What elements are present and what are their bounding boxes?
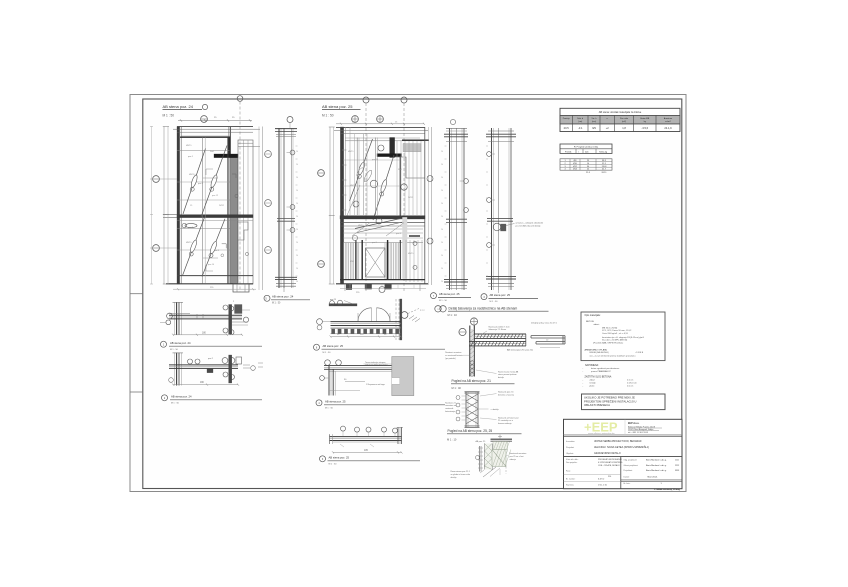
svg-text:M 1 : 50: M 1 : 50 <box>322 114 334 118</box>
svg-text:poz.14: poz.14 <box>208 264 215 266</box>
svg-text:M 1 : 10: M 1 : 10 <box>447 437 457 441</box>
svg-text:Rezervisano poz 25 1: Rezervisano poz 25 1 <box>451 471 471 473</box>
svg-text:(m2): (m2) <box>622 121 626 123</box>
svg-text:Boris Marković u.d.i.g.: Boris Marković u.d.i.g. <box>646 464 667 467</box>
svg-text:AB stena poz. 24: AB stena poz. 24 <box>163 104 194 109</box>
svg-text:M 1 : 50: M 1 : 50 <box>272 302 281 304</box>
svg-text:PG: PG <box>608 476 611 478</box>
svg-text:Br. lista:: Br. lista: <box>624 482 631 485</box>
svg-text:AB stena poz. 25: AB stena poz. 25 <box>490 293 511 297</box>
svg-text:armatura - odstojnik obezbedit: armatura - odstojnik obezbediti <box>516 221 544 224</box>
svg-text:Cmin 260 kg/m3 ; v/c = 0,55: Cmin 260 kg/m3 ; v/c = 0,55 <box>602 333 629 335</box>
svg-text:M 1 : 50: M 1 : 50 <box>490 301 499 303</box>
svg-text:Rezervisano mesto AB: Rezervisano mesto AB <box>498 370 519 373</box>
svg-text:Vrsta teh. dok.:: Vrsta teh. dok.: <box>566 458 579 461</box>
svg-text:Faza:: Faza: <box>566 470 571 472</box>
svg-text:(po potrebi): (po potrebi) <box>445 357 456 360</box>
svg-text:6.3/7-2: 6.3/7-2 <box>598 479 605 481</box>
svg-text:20: 20 <box>441 164 443 166</box>
svg-text:20: 20 <box>441 203 443 205</box>
svg-text:tel: +381 11 301 5555: tel: +381 11 301 5555 <box>628 431 649 434</box>
svg-text:M 1 : 10: M 1 : 10 <box>448 313 458 317</box>
svg-text:20: 20 <box>441 255 443 257</box>
svg-text:Ø8/15: Ø8/15 <box>358 225 364 227</box>
svg-text:Pov. zida: Pov. zida <box>620 118 629 120</box>
svg-text:stene prema tipskom: stene prema tipskom <box>498 373 517 376</box>
svg-text:betonira u fazama: betonira u fazama <box>498 393 515 396</box>
svg-text:Opis materijala:: Opis materijala: <box>585 314 601 317</box>
svg-text:20: 20 <box>296 229 298 231</box>
svg-text:M 1 : 40: M 1 : 40 <box>452 386 462 390</box>
svg-text:Br. sveske:: Br. sveske: <box>566 478 576 481</box>
svg-text:Investitor:: Investitor: <box>566 440 575 443</box>
svg-text:PROJEKAT ZA IZVOĐENJE: PROJEKAT ZA IZVOĐENJE <box>598 458 623 461</box>
svg-text:BETON:: BETON: <box>586 321 594 323</box>
svg-text:JELICINA I IVANA GETEA (SPRAT+: JELICINA I IVANA GETEA (SPRAT+SPREMIŠLJ) <box>594 446 649 449</box>
svg-text:20: 20 <box>296 281 298 283</box>
svg-text:MB 30 (C 25/30): MB 30 (C 25/30) <box>602 327 618 329</box>
svg-text:n: n <box>607 118 608 120</box>
svg-text:se gleda iz forme zida: se gleda iz forme zida <box>451 474 471 476</box>
svg-text:AB stena poz. 24: AB stena poz. 24 <box>171 394 192 398</box>
svg-text:Mart 2014.: Mart 2014. <box>648 476 658 479</box>
svg-text:EEP d.o.o.: EEP d.o.o. <box>628 423 640 425</box>
svg-text:zidanja: zidanja <box>510 459 517 461</box>
svg-text:1:50, 1:10: 1:50, 1:10 <box>598 484 608 486</box>
svg-text:2.5/5.0 cm: 2.5/5.0 cm <box>627 383 637 385</box>
svg-text:M 1 : 50: M 1 : 50 <box>163 114 175 118</box>
svg-text:1111: 1111 <box>675 460 679 462</box>
svg-text:ARMATURA I OPLATA:: ARMATURA I OPLATA: <box>585 348 608 351</box>
svg-text:M 1 : 50: M 1 : 50 <box>323 352 332 354</box>
svg-text:Boris Marković u.d.i.g.: Boris Marković u.d.i.g. <box>646 469 667 472</box>
svg-text:- u detalju: - u detalju <box>490 408 499 411</box>
svg-text:Razmera: Razmera <box>566 483 575 486</box>
svg-text:20: 20 <box>296 216 298 218</box>
svg-text:Objekat:: Objekat: <box>566 452 574 455</box>
svg-text:Detalj šalovanja za nadstrešni: Detalj šalovanja za nadstrešnicu na AB s… <box>449 307 518 311</box>
svg-text:-3.1: -3.1 <box>578 126 583 130</box>
svg-text:UNITED SERBIA PROJECT DOO, BEO: UNITED SERBIA PROJECT DOO, BEOGRAD <box>594 440 642 443</box>
svg-text:xxx - za sve elemente prema st: xxx - za sve elemente prema statičkom pr… <box>590 354 637 357</box>
svg-text:2222: 2222 <box>675 465 679 467</box>
svg-text:1 Napomena od toga: 1 Napomena od toga <box>366 383 386 386</box>
svg-text:20: 20 <box>296 190 298 192</box>
svg-text:262.1: 262.1 <box>601 172 607 174</box>
svg-text:Ø8/15: Ø8/15 <box>348 151 354 153</box>
svg-text:Boris Marković u.d.i.g.: Boris Marković u.d.i.g. <box>646 459 667 462</box>
svg-text:energy efficiency partnership: energy efficiency partnership doo <box>588 432 614 435</box>
svg-text:Ø8/20: Ø8/20 <box>350 185 356 187</box>
svg-text:20: 20 <box>296 255 298 257</box>
svg-text:4 JUS B: 4 JUS B <box>636 352 644 354</box>
svg-text:2.5 cm: 2.5 cm <box>627 380 634 382</box>
svg-text:Težina kg: Težina kg <box>599 151 607 153</box>
svg-text:Glavni projektant:: Glavni projektant: <box>624 464 639 467</box>
svg-text:9/9: 9/9 <box>592 126 596 130</box>
svg-text:Pogled na AB stenu poz. 21: Pogled na AB stenu poz. 21 <box>452 379 492 383</box>
svg-text:3333: 3333 <box>675 470 679 472</box>
svg-text:OBLASTI PRESECA: OBLASTI PRESECA <box>584 403 610 407</box>
svg-text:20: 20 <box>296 177 298 179</box>
svg-text:24.1,9: 24.1,9 <box>664 126 672 130</box>
svg-text:Pogled na AB stenu poz. 25, 25: Pogled na AB stenu poz. 25, 25 <box>448 429 493 433</box>
svg-text:(cm): (cm) <box>592 121 596 123</box>
svg-text:Projektant:: Projektant: <box>624 469 634 472</box>
svg-text:NAPOMENA:: NAPOMENA: <box>585 364 599 367</box>
svg-text:armature za: armature za <box>445 404 457 407</box>
svg-text:20: 20 <box>441 216 443 218</box>
svg-text:fazama zidanja: fazama zidanja <box>498 423 512 425</box>
svg-text:20: 20 <box>441 190 443 192</box>
svg-text:20: 20 <box>296 268 298 270</box>
svg-text:Termo izolacija stiropor,: Termo izolacija stiropor, <box>365 361 386 364</box>
svg-text:M 1 : 50: M 1 : 50 <box>171 402 180 404</box>
svg-text:za/m2: za/m2 <box>665 121 671 123</box>
svg-text:Nastavci 21: Nastavci 21 <box>445 401 456 404</box>
svg-text:R: Pregled utroška čelika: R: Pregled utroška čelika <box>574 145 599 148</box>
svg-text:Ø8/15: Ø8/15 <box>408 253 414 255</box>
svg-text:Pozicija: Pozicija <box>563 118 571 120</box>
svg-text:Detaljniji prikaz veza što 27.: Detaljniji prikaz veza što 27.5 <box>531 321 558 324</box>
svg-text:Nastavci armature: Nastavci armature <box>445 351 462 354</box>
svg-text:AB stena poz. 24: AB stena poz. 24 <box>170 341 191 345</box>
svg-text:nastavak: nastavak <box>445 407 453 410</box>
svg-text:kom: kom <box>585 151 589 153</box>
svg-text:Projekat:: Projekat: <box>566 446 575 449</box>
svg-text:2.0 cm: 2.0 cm <box>627 386 634 388</box>
svg-text:poz 25 se u fazi: poz 25 se u fazi <box>510 456 525 458</box>
svg-text:20.5: 20.5 <box>564 126 570 130</box>
svg-text:AB stena: utrošak materijala z: AB stena: utrošak materijala za zidove <box>599 111 642 114</box>
svg-text:Nastavak poz 21 i: Nastavak poz 21 i <box>498 391 514 394</box>
svg-text:AB stena (poz 25 i poz 21): AB stena (poz 25 i poz 21) <box>507 349 533 352</box>
svg-text:Deo projekta:: Deo projekta: <box>566 461 578 464</box>
svg-text:AB stena poz. 25: AB stena poz. 25 <box>329 455 350 459</box>
svg-text:Odg. projektant:: Odg. projektant: <box>624 459 638 462</box>
svg-text:20: 20 <box>296 164 298 166</box>
svg-text:M 1 : 50: M 1 : 50 <box>329 463 338 465</box>
svg-text:fck,cube = 30 MPa (MB 30): fck,cube = 30 MPa (MB 30) <box>602 340 628 342</box>
svg-text:ploče: ploče <box>590 386 596 388</box>
svg-text:6.3 PROJEKAT KONSTRUK-: 6.3 PROJEKAT KONSTRUK- <box>598 461 623 464</box>
svg-text:20: 20 <box>441 242 443 244</box>
svg-text:Ø8/15: Ø8/15 <box>186 145 192 147</box>
svg-text:AB stena poz. 25: AB stena poz. 25 <box>322 104 353 109</box>
svg-text:20: 20 <box>441 229 443 231</box>
svg-text:Prečnik: Prečnik <box>565 150 571 153</box>
svg-text:-3.5,6: -3.5,6 <box>641 126 648 130</box>
svg-text:zidovi:: zidovi: <box>594 324 600 326</box>
svg-text:20: 20 <box>441 177 443 179</box>
svg-text:detalju: detalju <box>498 376 504 379</box>
svg-text:AB poz. 25: AB poz. 25 <box>476 440 487 443</box>
svg-text:AB stena poz. 25: AB stena poz. 25 <box>325 399 346 403</box>
svg-text:M 1 : 50: M 1 : 50 <box>439 300 448 302</box>
svg-text:20: 20 <box>441 268 443 270</box>
svg-text:poz.12: poz.12 <box>212 195 219 197</box>
svg-text:M 1 : 50: M 1 : 50 <box>170 349 179 351</box>
svg-text:ZAŠTITNI SLOJ BETONA:: ZAŠTITNI SLOJ BETONA: <box>585 376 613 379</box>
svg-text:poz.25: poz.25 <box>372 159 379 161</box>
svg-text:Datum:: Datum: <box>624 476 631 479</box>
svg-text:Armatura: Armatura <box>664 117 673 120</box>
svg-text:20: 20 <box>296 151 298 153</box>
svg-text:(cm): (cm) <box>578 121 582 123</box>
svg-text:20: 20 <box>441 281 443 283</box>
svg-text:20: 20 <box>296 242 298 244</box>
svg-text:Nastavak zaštitni 7.5cm: Nastavak zaštitni 7.5cm <box>489 325 510 328</box>
svg-text:F:\14\AB-zid-detalji_25.dwg: F:\14\AB-zid-detalji_25.dwg <box>654 488 681 491</box>
svg-text:poz.25: poz.25 <box>330 299 337 301</box>
svg-text:beton ugrađivati pervibratorom: beton ugrađivati pervibratorom <box>591 367 619 370</box>
svg-text:AB stena poz. 25: AB stena poz. 25 <box>439 292 460 296</box>
svg-text:B500B (RA 400/500): B500B (RA 400/500) <box>590 351 609 354</box>
svg-text:CIJE - OPLATE, DETALJI: CIJE - OPLATE, DETALJI <box>598 464 620 467</box>
svg-text:20: 20 <box>296 203 298 205</box>
svg-text:po visini AB zida (vidi detalj: po visini AB zida (vidi detalj) <box>516 224 541 227</box>
svg-text:XC1, XC2; Dmax 16 mm; Cl 0,2: XC1, XC2; Dmax 16 mm; Cl 0,2 <box>602 330 632 332</box>
svg-text:konzistencija u kl. sleganja S: konzistencija u kl. sleganja S3 (8-15cm)… <box>602 336 645 339</box>
svg-text:20: 20 <box>441 151 443 153</box>
svg-text:21 nastavlja se u: 21 nastavlja se u <box>498 419 513 422</box>
svg-text:za nastavak betonir.: za nastavak betonir. <box>445 354 463 357</box>
svg-text:M 1 : 50: M 1 : 50 <box>325 407 334 409</box>
svg-text:detalja: detalja <box>451 476 458 479</box>
svg-text:prema PBAB/BAB 87: prema PBAB/BAB 87 <box>591 370 611 373</box>
svg-text:GRADJEVINSKI DETALJI: GRADJEVINSKI DETALJI <box>594 452 621 455</box>
svg-text:AB stena poz. 24: AB stena poz. 24 <box>272 295 294 299</box>
svg-text:Nastavak armature poz: Nastavak armature poz <box>498 416 519 419</box>
svg-text:temelji: temelji <box>590 382 597 385</box>
svg-text:1,8: 1,8 <box>622 126 626 130</box>
svg-text:Ø8/15: Ø8/15 <box>186 242 192 244</box>
svg-text:Ø8/20: Ø8/20 <box>189 174 195 176</box>
svg-text:betoniranja: betoniranja <box>445 410 456 413</box>
svg-text:Beton MB: Beton MB <box>640 117 649 120</box>
svg-text:(Pravilnik BAB, SRPS EN 206-1): (Pravilnik BAB, SRPS EN 206-1) <box>593 342 623 345</box>
svg-text:kg: kg <box>644 121 646 123</box>
svg-text:Deb. d: Deb. d <box>577 118 583 120</box>
svg-text:zidovi: zidovi <box>590 380 596 382</box>
svg-text:Nastavak armature: Nastavak armature <box>510 452 528 455</box>
svg-text:Vis. h: Vis. h <box>592 118 597 120</box>
svg-text:šalovanje 7.5 Stena: šalovanje 7.5 Stena <box>489 328 507 331</box>
svg-text:AB stena poz. 25: AB stena poz. 25 <box>323 344 344 348</box>
